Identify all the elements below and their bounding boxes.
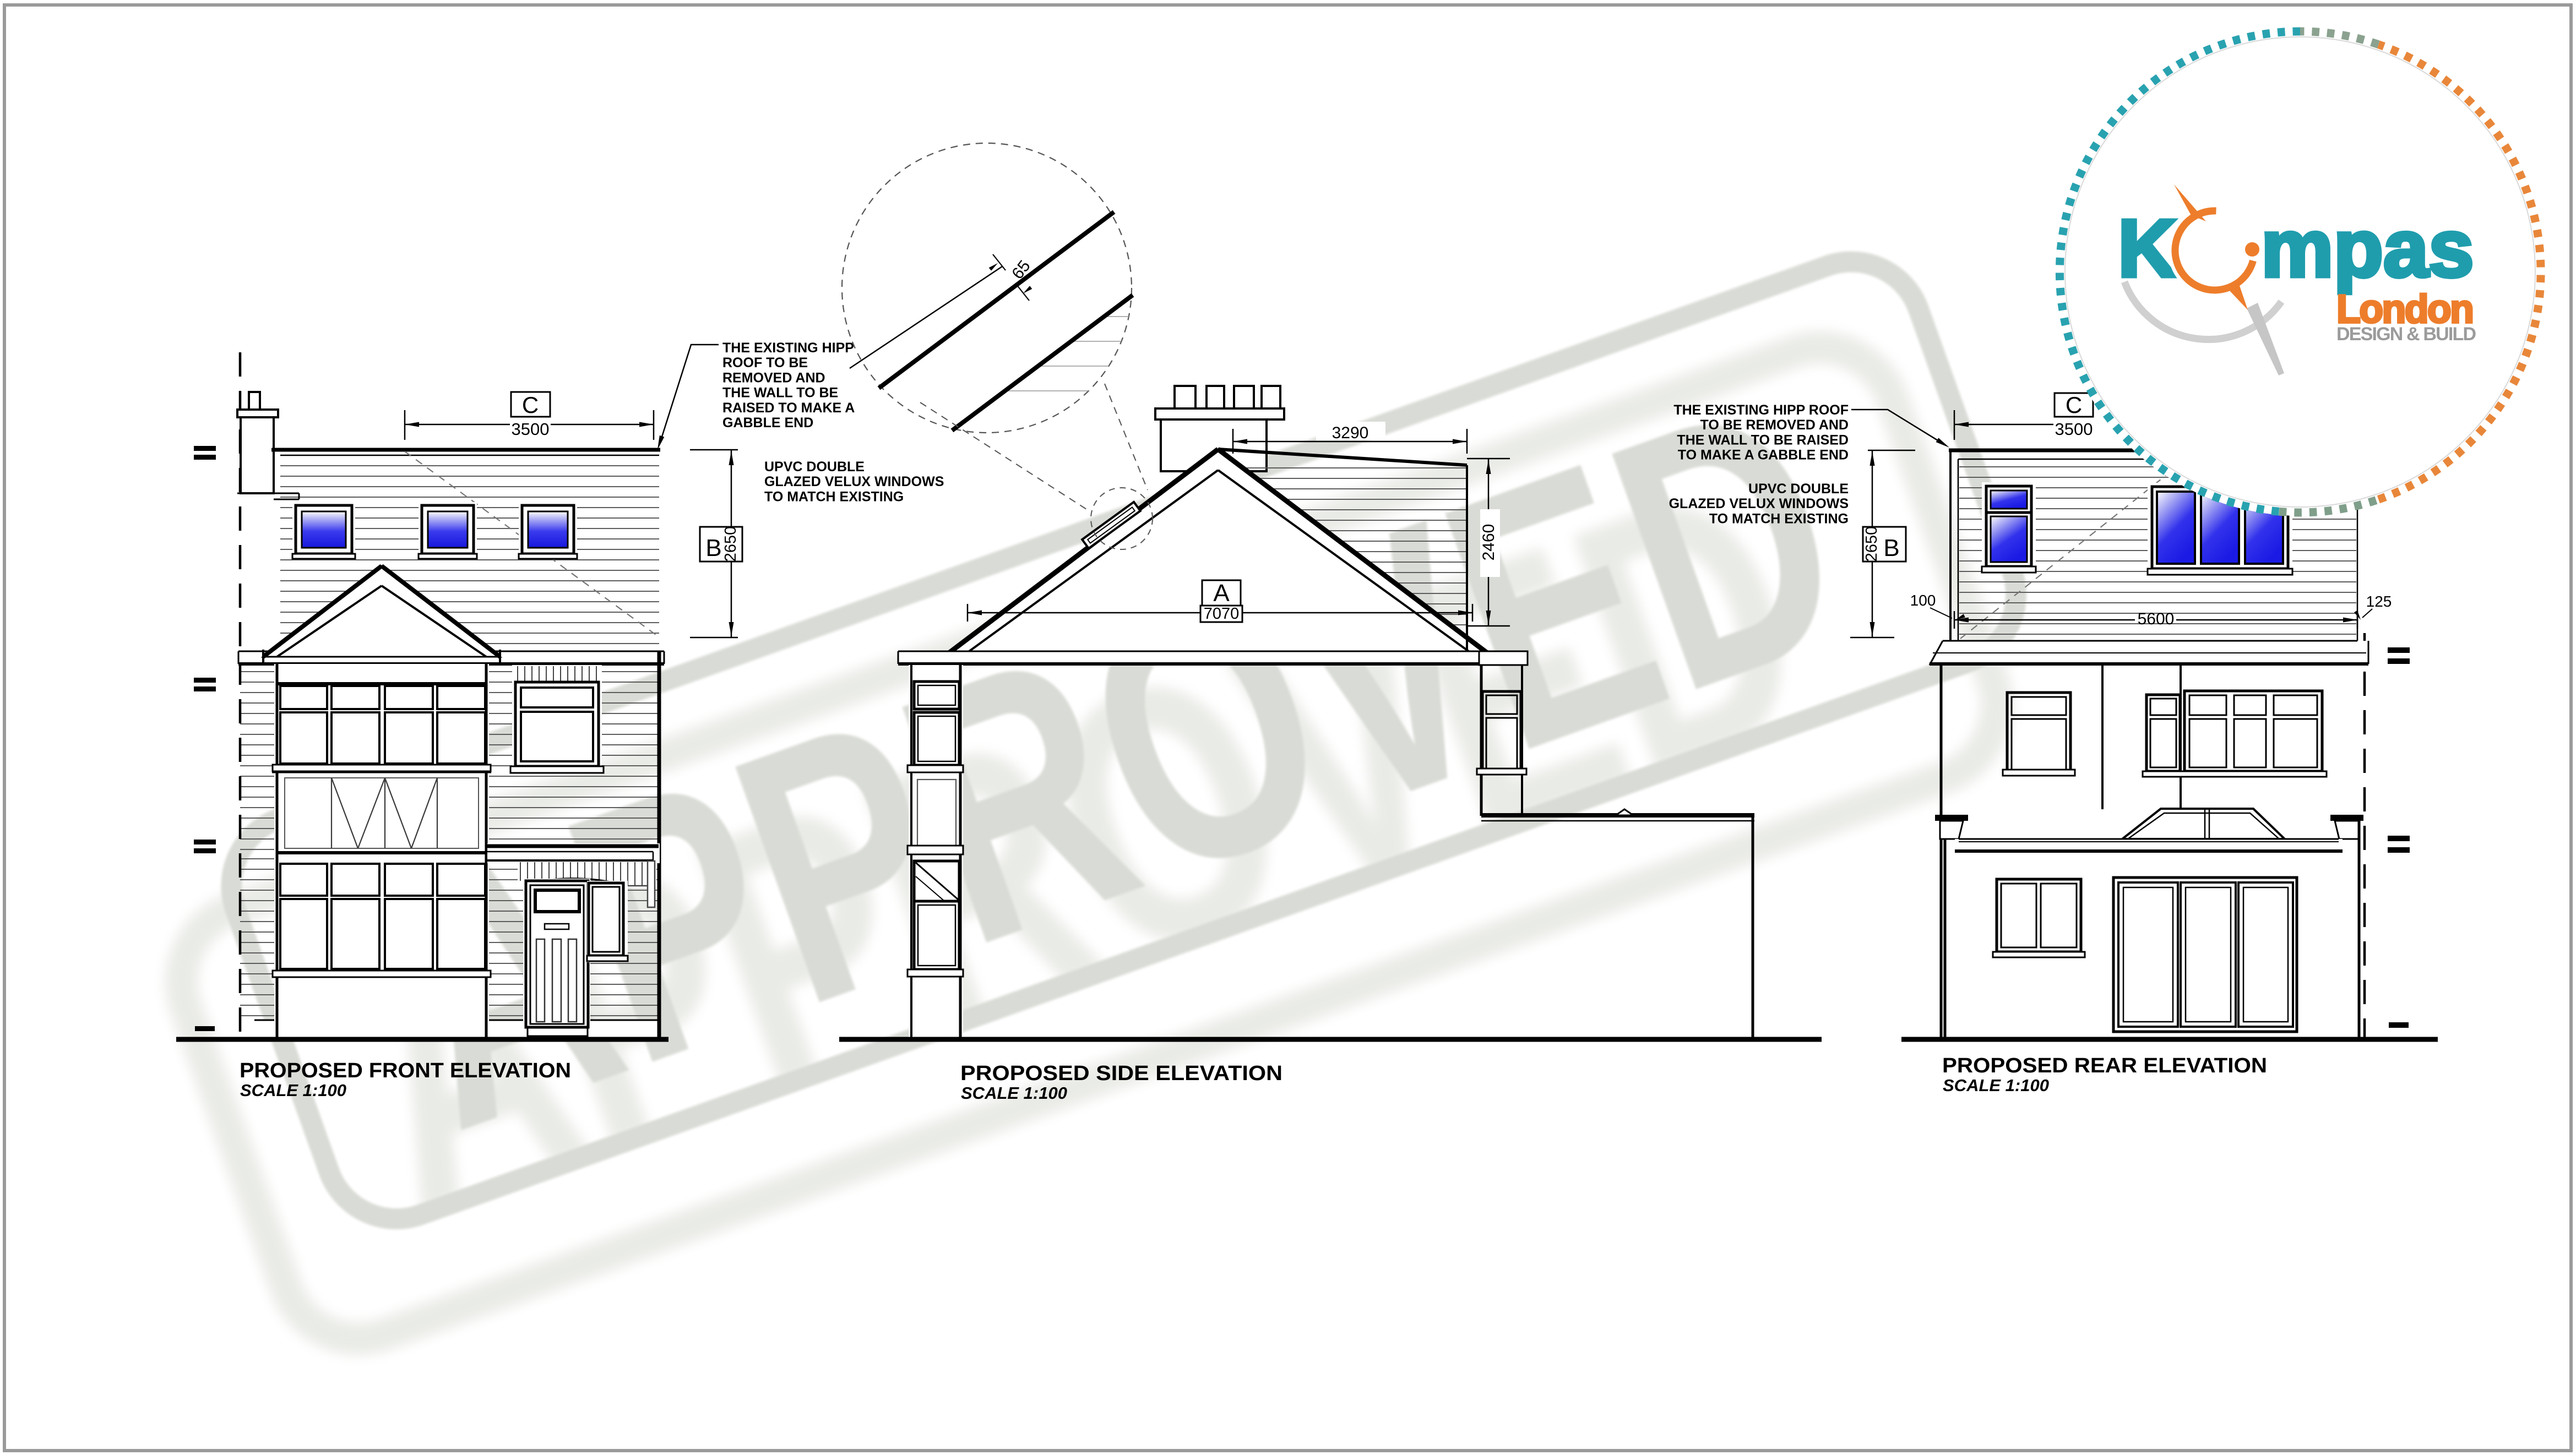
svg-text:PROPOSED FRONT ELEVATION: PROPOSED FRONT ELEVATION (240, 1059, 571, 1082)
svg-text:TO MAKE A GABBLE END: TO MAKE A GABBLE END (1678, 448, 1849, 463)
svg-text:THE WALL TO BE: THE WALL TO BE (722, 385, 838, 401)
svg-text:TO BE REMOVED AND: TO BE REMOVED AND (1700, 417, 1849, 433)
svg-text:SCALE 1:100: SCALE 1:100 (240, 1081, 346, 1100)
svg-text:2650: 2650 (1863, 526, 1881, 562)
svg-text:mpas: mpas (2261, 203, 2474, 294)
svg-text:2460: 2460 (1480, 524, 1498, 561)
svg-text:DESIGN & BUILD: DESIGN & BUILD (2336, 324, 2476, 345)
svg-text:7070: 7070 (1204, 605, 1240, 623)
svg-text:THE EXISTING HIPP ROOF: THE EXISTING HIPP ROOF (1673, 402, 1849, 418)
svg-text:125: 125 (2366, 593, 2392, 610)
svg-text:PROPOSED SIDE ELEVATION: PROPOSED SIDE ELEVATION (960, 1062, 1282, 1085)
svg-text:REMOVED AND: REMOVED AND (722, 370, 825, 385)
svg-text:3500: 3500 (512, 419, 550, 439)
svg-text:C: C (2066, 392, 2082, 418)
svg-text:2650: 2650 (722, 526, 740, 562)
svg-text:THE EXISTING HIPP: THE EXISTING HIPP (722, 340, 854, 356)
svg-text:UPVC DOUBLE: UPVC DOUBLE (764, 459, 865, 475)
svg-text:GLAZED VELUX WINDOWS: GLAZED VELUX WINDOWS (1669, 496, 1849, 511)
svg-text:RAISED TO MAKE A: RAISED TO MAKE A (722, 400, 855, 416)
svg-text:B: B (1883, 535, 1899, 562)
svg-text:UPVC DOUBLE: UPVC DOUBLE (1748, 481, 1849, 497)
svg-text:ROOF TO BE: ROOF TO BE (722, 355, 808, 370)
svg-text:TO MATCH EXISTING: TO MATCH EXISTING (1709, 511, 1849, 526)
svg-text:SCALE 1:100: SCALE 1:100 (1943, 1076, 2049, 1095)
svg-text:SCALE 1:100: SCALE 1:100 (961, 1083, 1067, 1103)
svg-text:GABBLE END: GABBLE END (722, 415, 813, 430)
svg-text:THE WALL TO BE RAISED: THE WALL TO BE RAISED (1677, 432, 1849, 448)
svg-text:PROPOSED REAR ELEVATION: PROPOSED REAR ELEVATION (1942, 1054, 2267, 1077)
svg-text:GLAZED VELUX WINDOWS: GLAZED VELUX WINDOWS (764, 474, 944, 489)
svg-text:3290: 3290 (1332, 424, 1369, 442)
svg-text:B: B (705, 535, 721, 562)
svg-text:100: 100 (1910, 592, 1936, 609)
svg-text:A: A (1213, 580, 1230, 607)
svg-text:C: C (522, 392, 539, 418)
svg-text:TO MATCH EXISTING: TO MATCH EXISTING (764, 489, 904, 504)
svg-text:5600: 5600 (2138, 610, 2175, 628)
svg-text:K: K (2118, 203, 2177, 294)
svg-text:3500: 3500 (2055, 419, 2093, 439)
